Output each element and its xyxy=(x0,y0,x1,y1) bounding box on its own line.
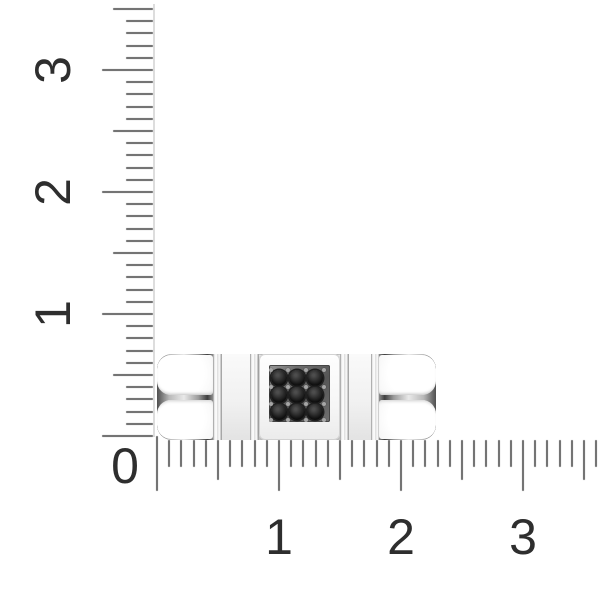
vertical-ruler-tick xyxy=(126,93,153,95)
horizontal-ruler-tick xyxy=(400,440,402,491)
horizontal-ruler-tick xyxy=(534,440,536,467)
black-stone xyxy=(307,404,323,420)
horizontal-ruler-tick xyxy=(266,440,268,467)
vertical-ruler-number-3: 3 xyxy=(28,56,78,84)
prong-dot xyxy=(269,385,273,389)
vertical-ruler-tick xyxy=(126,362,153,364)
vertical-ruler-number-2: 2 xyxy=(28,178,78,206)
vertical-ruler-tick xyxy=(126,20,153,22)
horizontal-ruler-tick xyxy=(473,440,475,467)
horizontal-ruler-tick xyxy=(461,440,463,480)
vertical-ruler-tick xyxy=(113,8,153,10)
gem-plate xyxy=(259,354,340,440)
horizontal-ruler-tick xyxy=(546,440,548,467)
vertical-ruler-tick xyxy=(102,191,153,193)
vertical-ruler-tick xyxy=(126,32,153,34)
vertical-ruler-tick xyxy=(102,435,153,437)
prong-dot xyxy=(322,385,326,389)
horizontal-ruler-tick xyxy=(290,440,292,467)
ring-right-cap xyxy=(379,354,436,440)
black-stone xyxy=(271,404,287,420)
horizontal-ruler-tick xyxy=(437,440,439,467)
prong-dot xyxy=(269,418,273,422)
prong-dot xyxy=(269,402,273,406)
vertical-ruler-tick xyxy=(126,325,153,327)
horizontal-ruler-tick xyxy=(327,440,329,467)
black-stone xyxy=(289,404,305,420)
horizontal-ruler-tick xyxy=(229,440,231,467)
horizontal-ruler-number-2: 2 xyxy=(387,512,415,562)
vertical-ruler-tick xyxy=(113,130,153,132)
horizontal-ruler-tick xyxy=(193,440,195,467)
vertical-ruler-line xyxy=(153,4,155,437)
black-stone xyxy=(271,370,287,386)
horizontal-ruler-tick xyxy=(351,440,353,467)
ring-right-cap-top-lobe xyxy=(379,355,436,395)
vertical-ruler-tick xyxy=(126,215,153,217)
horizontal-ruler-tick xyxy=(156,436,158,491)
horizontal-ruler-number-3: 3 xyxy=(509,512,537,562)
vertical-ruler-tick xyxy=(126,240,153,242)
vertical-ruler-tick xyxy=(126,301,153,303)
horizontal-ruler-tick xyxy=(339,440,341,480)
vertical-ruler-tick xyxy=(126,45,153,47)
horizontal-ruler-tick xyxy=(510,440,512,467)
horizontal-ruler-tick xyxy=(376,440,378,467)
ring-left-cap xyxy=(157,354,213,440)
ring-ridge xyxy=(340,354,349,440)
prong-dot xyxy=(322,368,326,372)
horizontal-ruler-tick xyxy=(180,440,182,467)
vertical-ruler-tick xyxy=(102,69,153,71)
prong-dot xyxy=(322,402,326,406)
vertical-ruler-tick xyxy=(126,264,153,266)
horizontal-ruler-tick xyxy=(522,440,524,491)
measurement-scene: 123 1230 xyxy=(0,0,600,600)
horizontal-ruler-tick xyxy=(571,440,573,467)
prong-dot xyxy=(269,368,273,372)
horizontal-ruler-tick xyxy=(388,440,390,467)
prong-dot xyxy=(304,368,308,372)
prong-dot xyxy=(286,402,290,406)
ring-segment xyxy=(349,354,371,440)
prong-dot xyxy=(304,418,308,422)
vertical-ruler-tick xyxy=(126,398,153,400)
prong-dot xyxy=(304,402,308,406)
prong-dot xyxy=(286,368,290,372)
vertical-ruler-tick xyxy=(126,167,153,169)
ring-ridge xyxy=(250,354,259,440)
ring-band xyxy=(157,354,436,440)
horizontal-ruler-tick xyxy=(449,440,451,467)
horizontal-ruler-tick xyxy=(412,440,414,467)
horizontal-ruler-tick xyxy=(278,440,280,491)
vertical-ruler-tick xyxy=(126,411,153,413)
horizontal-ruler-tick xyxy=(168,440,170,467)
horizontal-ruler-tick xyxy=(217,440,219,480)
black-stone xyxy=(307,370,323,386)
ring-right-cap-bottom-lobe xyxy=(379,400,436,439)
ring-segment xyxy=(222,354,250,440)
vertical-ruler-tick xyxy=(126,106,153,108)
horizontal-ruler-tick xyxy=(205,440,207,467)
pave-setting xyxy=(269,365,330,422)
horizontal-ruler-tick xyxy=(241,440,243,467)
vertical-ruler-tick xyxy=(126,423,153,425)
vertical-ruler-tick xyxy=(126,179,153,181)
vertical-ruler-tick xyxy=(126,386,153,388)
vertical-ruler-tick xyxy=(126,154,153,156)
vertical-ruler-tick xyxy=(126,337,153,339)
vertical-ruler-tick xyxy=(102,313,153,315)
horizontal-ruler-tick xyxy=(583,440,585,480)
ring-ridge xyxy=(213,354,222,440)
vertical-ruler-tick xyxy=(126,118,153,120)
prong-dot xyxy=(304,385,308,389)
prong-dot xyxy=(286,385,290,389)
horizontal-ruler-tick xyxy=(595,440,597,467)
ring-left-cap-top-lobe xyxy=(157,355,213,395)
vertical-ruler-tick xyxy=(126,228,153,230)
black-stone xyxy=(289,370,305,386)
horizontal-ruler-tick xyxy=(254,440,256,467)
horizontal-ruler-tick xyxy=(498,440,500,467)
horizontal-ruler-number-1: 1 xyxy=(265,512,293,562)
prong-dot xyxy=(286,418,290,422)
black-stone xyxy=(289,387,305,403)
vertical-ruler-tick xyxy=(126,81,153,83)
vertical-ruler-tick xyxy=(126,142,153,144)
origin-zero-label: 0 xyxy=(111,441,139,491)
black-stone xyxy=(271,387,287,403)
black-stone xyxy=(307,387,323,403)
vertical-ruler-number-1: 1 xyxy=(28,300,78,328)
horizontal-ruler-tick xyxy=(302,440,304,467)
vertical-ruler-tick xyxy=(126,289,153,291)
horizontal-ruler-tick xyxy=(424,440,426,467)
horizontal-ruler-tick xyxy=(559,440,561,467)
vertical-ruler-tick xyxy=(126,57,153,59)
ring-image xyxy=(157,354,436,440)
horizontal-ruler-tick xyxy=(315,440,317,467)
vertical-ruler-tick xyxy=(126,276,153,278)
prong-dot xyxy=(322,418,326,422)
vertical-ruler-tick xyxy=(113,374,153,376)
horizontal-ruler-tick xyxy=(363,440,365,467)
ring-left-cap-bottom-lobe xyxy=(157,400,213,439)
vertical-ruler-tick xyxy=(113,252,153,254)
vertical-ruler-tick xyxy=(126,350,153,352)
vertical-ruler-tick xyxy=(126,203,153,205)
horizontal-ruler-tick xyxy=(485,440,487,467)
